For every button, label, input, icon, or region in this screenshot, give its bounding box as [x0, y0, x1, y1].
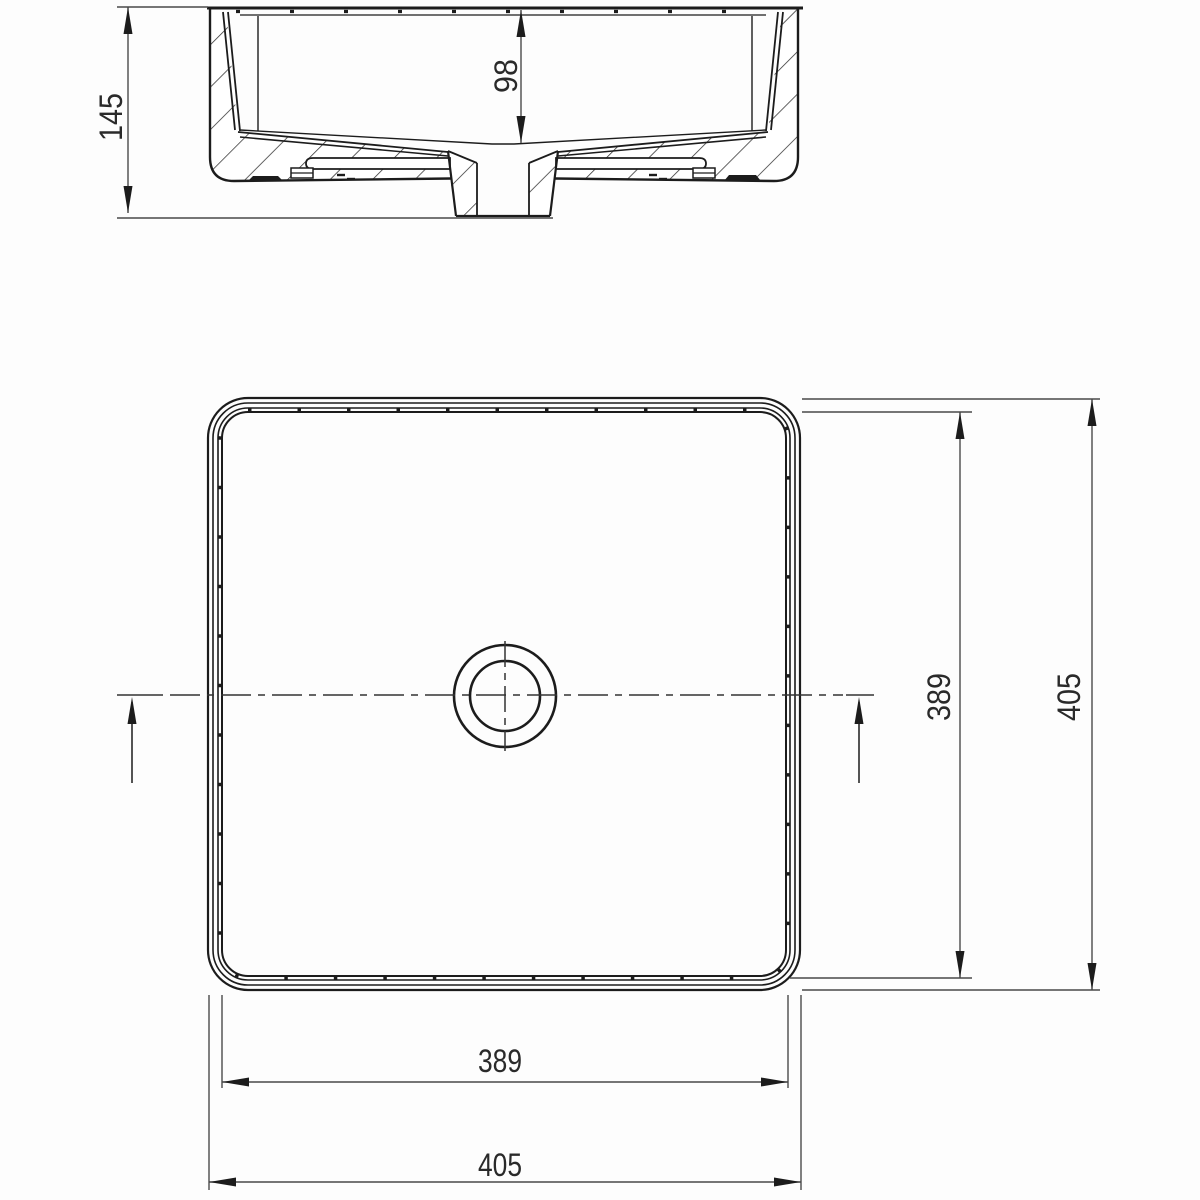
hatch-right-wall	[529, 9, 797, 215]
hatch-left-wall	[211, 9, 477, 215]
arrowhead	[1088, 963, 1097, 990]
arrowhead	[209, 1178, 236, 1187]
dim-overall-height	[117, 7, 553, 218]
arrowhead	[124, 7, 133, 34]
centerlines	[117, 641, 874, 751]
arrowhead	[774, 1178, 801, 1187]
dim-label-outer-length: 405	[1051, 673, 1087, 721]
rim-outline-2	[213, 403, 795, 985]
arrowhead	[956, 412, 965, 439]
rim-outlines	[208, 398, 800, 990]
section-hatch-group	[211, 9, 797, 215]
overflow-shelf-left	[306, 158, 450, 169]
section-contours	[207, 8, 803, 216]
dim-label-bowl-depth: 98	[488, 59, 524, 93]
centerline-markers	[128, 697, 864, 783]
arrowhead	[1088, 399, 1097, 426]
arrowhead	[761, 1078, 788, 1087]
rim-outline-3	[218, 408, 790, 980]
arrowhead	[128, 697, 137, 724]
dim-label-overall-height: 145	[93, 93, 129, 141]
arrowhead	[124, 186, 133, 213]
arrowhead	[222, 1078, 249, 1087]
arrowhead	[517, 116, 526, 143]
overflow-shelf-right	[556, 158, 706, 169]
rim-outline-inner	[222, 412, 786, 976]
arrowhead	[855, 697, 864, 724]
technical-drawing-canvas: 145 98	[0, 0, 1200, 1200]
rim-outline-outer	[208, 398, 800, 990]
arrowhead	[956, 951, 965, 978]
drawing-sheet: 145 98	[0, 0, 1200, 1200]
dim-label-outer-width: 405	[478, 1147, 522, 1183]
section-view: 145 98	[93, 7, 803, 218]
dim-label-inner-length: 389	[921, 673, 957, 721]
top-view: 389 405 389 405	[117, 398, 1100, 1190]
arrowhead	[517, 10, 526, 37]
dim-label-inner-width: 389	[478, 1043, 522, 1079]
rim-tick-marks	[220, 410, 788, 978]
